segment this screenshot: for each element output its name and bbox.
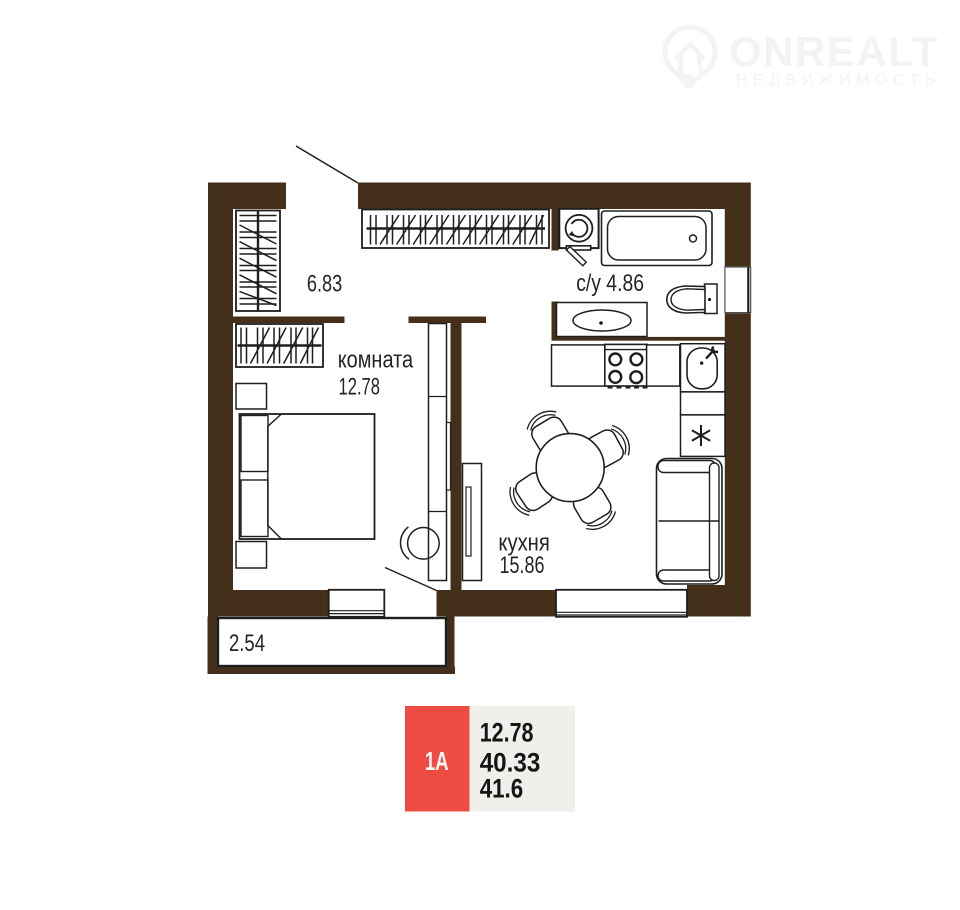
svg-text:комната: комната bbox=[338, 347, 414, 374]
svg-text:НЕДВИЖИМОСТЬ: НЕДВИЖИМОСТЬ bbox=[736, 72, 941, 89]
svg-text:1А: 1А bbox=[425, 748, 449, 776]
svg-text:12.78: 12.78 bbox=[339, 374, 381, 401]
svg-text:41.6: 41.6 bbox=[480, 774, 524, 804]
svg-text:с/у 4.86: с/у 4.86 bbox=[576, 270, 644, 297]
svg-text:15.86: 15.86 bbox=[500, 552, 545, 579]
svg-text:ONREALT: ONREALT bbox=[729, 28, 939, 75]
svg-text:6.83: 6.83 bbox=[307, 271, 342, 298]
svg-text:12.78: 12.78 bbox=[480, 718, 534, 748]
svg-text:2.54: 2.54 bbox=[229, 630, 265, 657]
